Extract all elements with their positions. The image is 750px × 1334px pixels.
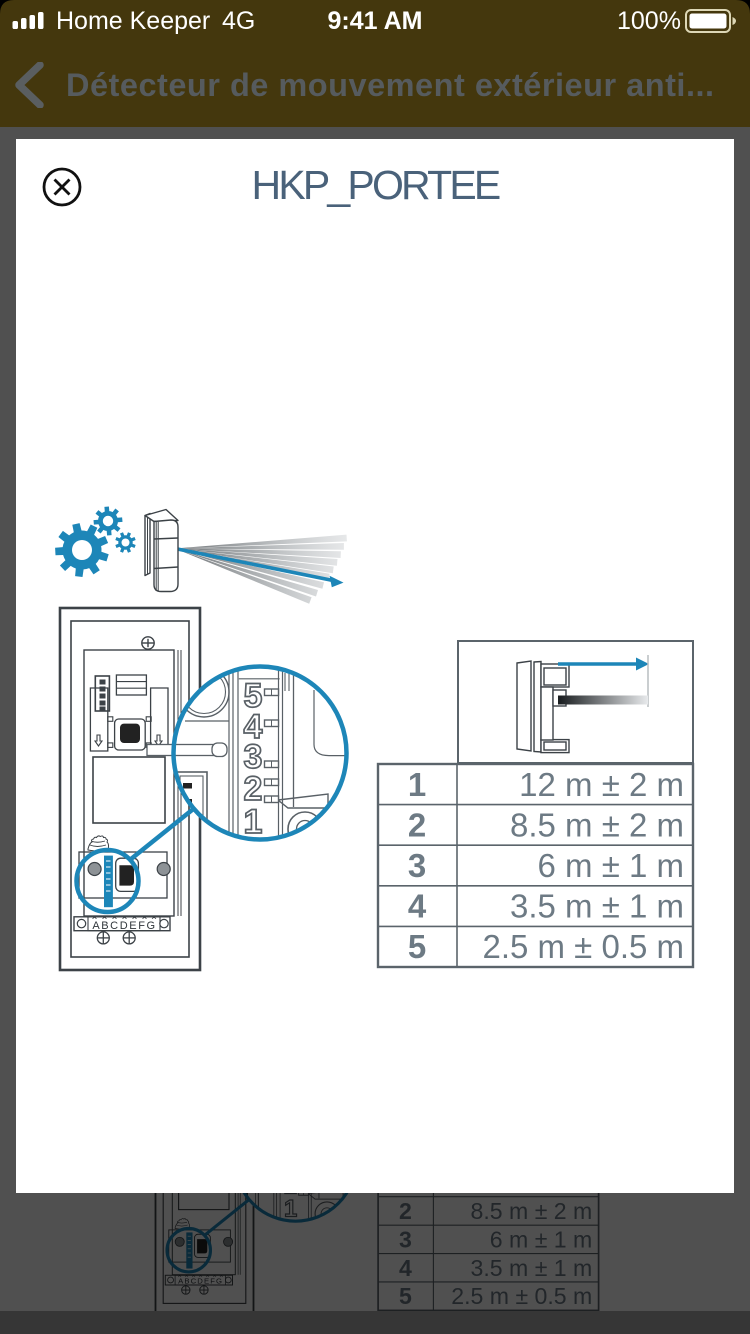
svg-text:3.5 m ± 1 m: 3.5 m ± 1 m: [470, 1254, 592, 1280]
svg-text:ABCDEFG: ABCDEFG: [92, 920, 156, 932]
svg-text:4: 4: [408, 888, 427, 925]
svg-text:3.5 m ± 1 m: 3.5 m ± 1 m: [510, 888, 684, 925]
svg-text:2.5 m ± 0.5 m: 2.5 m ± 0.5 m: [451, 1283, 592, 1309]
svg-text:3: 3: [398, 1226, 411, 1252]
svg-text:5: 5: [398, 1283, 411, 1309]
svg-text:5: 5: [408, 928, 426, 965]
svg-text:2: 2: [408, 806, 426, 843]
svg-text:ABCDEFG: ABCDEFG: [178, 1276, 223, 1285]
svg-text:1: 1: [408, 766, 426, 803]
svg-text:2: 2: [398, 1197, 411, 1223]
svg-text:6 m ± 1 m: 6 m ± 1 m: [489, 1226, 592, 1252]
svg-text:1: 1: [244, 803, 263, 841]
svg-text:4: 4: [398, 1254, 411, 1280]
svg-text:8.5 m ± 2 m: 8.5 m ± 2 m: [470, 1197, 592, 1223]
svg-text:3: 3: [408, 847, 426, 884]
svg-text:2.5 m ± 0.5 m: 2.5 m ± 0.5 m: [482, 928, 684, 965]
svg-text:6 m ± 1 m: 6 m ± 1 m: [538, 847, 684, 884]
svg-text:12 m ± 2 m: 12 m ± 2 m: [519, 766, 684, 803]
svg-text:8.5 m ± 2 m: 8.5 m ± 2 m: [510, 806, 684, 843]
svg-text:1: 1: [283, 1195, 296, 1222]
